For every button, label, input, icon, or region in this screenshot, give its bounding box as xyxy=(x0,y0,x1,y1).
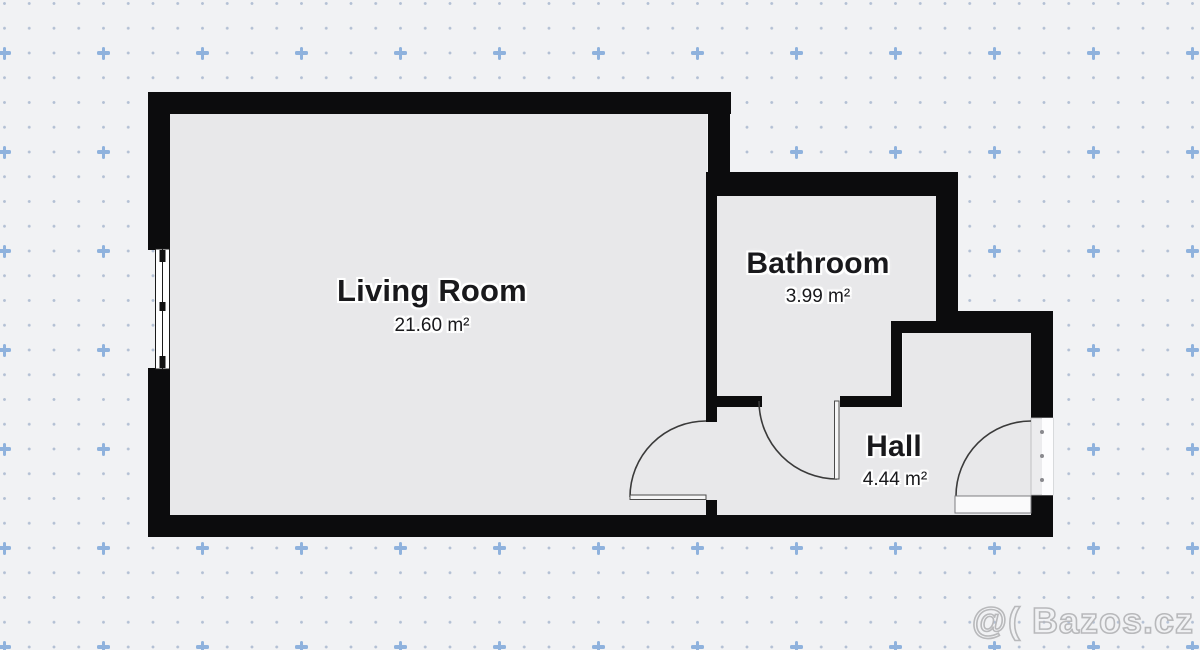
bazos-watermark: @( Bazos.cz xyxy=(972,600,1194,642)
door-swing-arc xyxy=(759,401,837,479)
room-label-bathroom: Bathroom xyxy=(746,247,889,281)
doors-window-overlay xyxy=(0,0,1200,650)
room-area-living-room: 21.60 m² xyxy=(395,315,470,337)
floorplan-canvas: Living Room 21.60 m² Bathroom 3.99 m² Ha… xyxy=(0,0,1200,650)
door-leaf xyxy=(955,496,1031,513)
room-label-living-room: Living Room xyxy=(337,273,527,309)
door-leaf xyxy=(630,495,706,500)
bathroom-door xyxy=(759,401,839,479)
door-leaf xyxy=(835,401,840,479)
hinge-dot xyxy=(1040,430,1044,434)
entry-door xyxy=(955,418,1053,513)
window xyxy=(156,249,170,369)
room-area-hall: 4.44 m² xyxy=(863,469,927,491)
hinge-dot xyxy=(1040,478,1044,482)
living-room-door xyxy=(630,421,706,500)
room-area-bathroom: 3.99 m² xyxy=(786,286,850,308)
hinge-dot xyxy=(1040,454,1044,458)
room-label-hall: Hall xyxy=(866,430,922,464)
door-swing-arc xyxy=(630,421,706,497)
door-swing-arc xyxy=(956,421,1031,496)
